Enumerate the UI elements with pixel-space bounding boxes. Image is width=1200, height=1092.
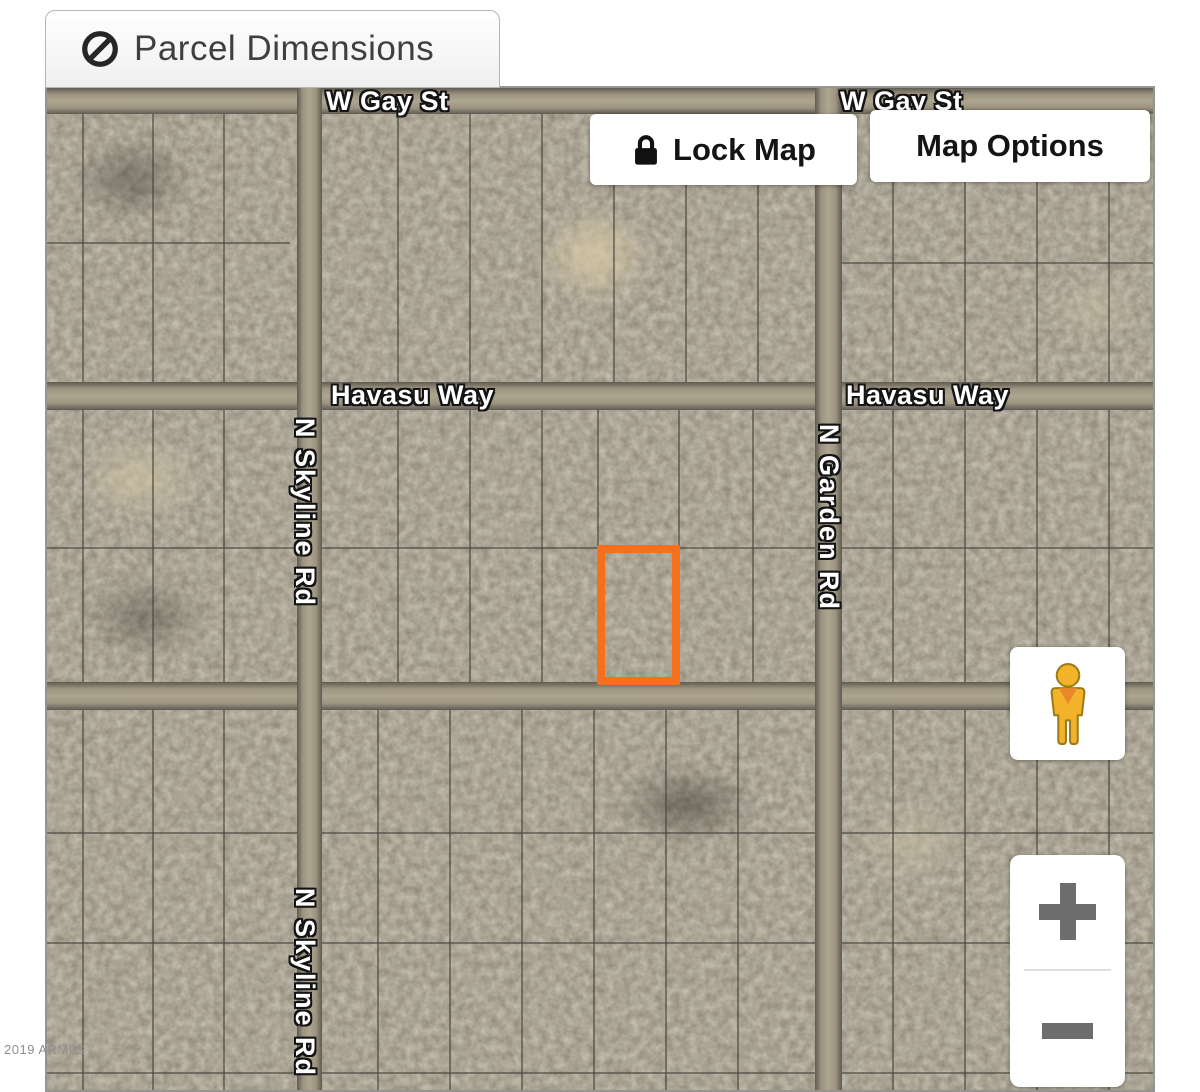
pegman-icon	[1037, 661, 1099, 747]
lot-line	[1036, 410, 1038, 682]
map-options-button[interactable]: Map Options	[870, 110, 1150, 182]
zoom-in-button[interactable]	[1010, 855, 1125, 969]
lock-map-label: Lock Map	[673, 132, 816, 168]
lot-line	[665, 710, 667, 1092]
lot-line	[47, 942, 1155, 944]
street-label-havasu-way-2: Havasu Way	[846, 380, 1009, 411]
no-symbol-icon	[80, 29, 120, 69]
lot-line	[593, 710, 595, 1092]
page: Parcel Dimensions	[0, 0, 1200, 1092]
lot-line	[152, 410, 154, 682]
street-view-pegman-button[interactable]	[1010, 647, 1125, 760]
zoom-out-button[interactable]	[1010, 973, 1125, 1087]
lot-line	[541, 410, 543, 682]
lot-line	[152, 710, 154, 1092]
lot-line	[737, 710, 739, 1092]
lot-line	[82, 710, 84, 1092]
terrain-light-patch	[1032, 258, 1155, 358]
lot-line	[1108, 410, 1110, 682]
terrain-dark-patch	[52, 122, 212, 237]
lot-line	[397, 410, 399, 682]
lot-line	[469, 114, 471, 382]
lot-line	[223, 710, 225, 1092]
terrain-light-patch	[52, 418, 227, 538]
lot-line	[47, 242, 290, 244]
lot-line	[223, 410, 225, 682]
zoom-out-icon	[1042, 1023, 1093, 1039]
lot-line	[842, 262, 1155, 264]
zoom-divider	[1024, 969, 1111, 971]
lot-line	[521, 710, 523, 1092]
lock-icon	[631, 133, 661, 167]
lot-line	[152, 114, 154, 382]
parcel-dimensions-tab[interactable]: Parcel Dimensions	[45, 10, 500, 88]
lot-line	[541, 114, 543, 382]
street-label-n-skyline-rd-1: N Skyline Rd	[289, 418, 320, 607]
street-label-n-garden-rd: N Garden Rd	[813, 424, 844, 611]
lot-line	[82, 114, 84, 382]
map-options-label: Map Options	[916, 128, 1104, 164]
lot-line	[964, 710, 966, 1092]
road-unnamed	[47, 682, 1153, 710]
lot-line	[892, 410, 894, 682]
lot-line	[449, 710, 451, 1092]
lot-line	[82, 410, 84, 682]
zoom-in-icon	[1039, 883, 1096, 940]
lot-line	[377, 710, 379, 1092]
lot-line	[47, 832, 1155, 834]
zoom-control	[1010, 855, 1125, 1087]
terrain-dark-patch	[62, 562, 227, 672]
lot-line	[47, 1072, 1155, 1074]
lot-line	[223, 114, 225, 382]
lock-map-button[interactable]: Lock Map	[590, 114, 857, 185]
street-label-havasu-way-1: Havasu Way	[331, 380, 494, 411]
lot-line	[964, 410, 966, 682]
lot-line	[397, 114, 399, 382]
terrain-dark-patch	[592, 752, 782, 857]
street-label-n-skyline-rd-2: N Skyline Rd	[289, 888, 320, 1077]
lot-line	[469, 410, 471, 682]
watermark: 2019 ARMLS	[4, 1042, 86, 1057]
lot-line	[752, 410, 754, 682]
highlighted-parcel-outline[interactable]	[597, 545, 680, 685]
parcel-dimensions-label: Parcel Dimensions	[134, 29, 434, 69]
map[interactable]: W Gay St W Gay St Havasu Way Havasu Way …	[45, 86, 1155, 1092]
lot-line	[892, 710, 894, 1092]
street-label-w-gay-st-1: W Gay St	[326, 86, 449, 117]
